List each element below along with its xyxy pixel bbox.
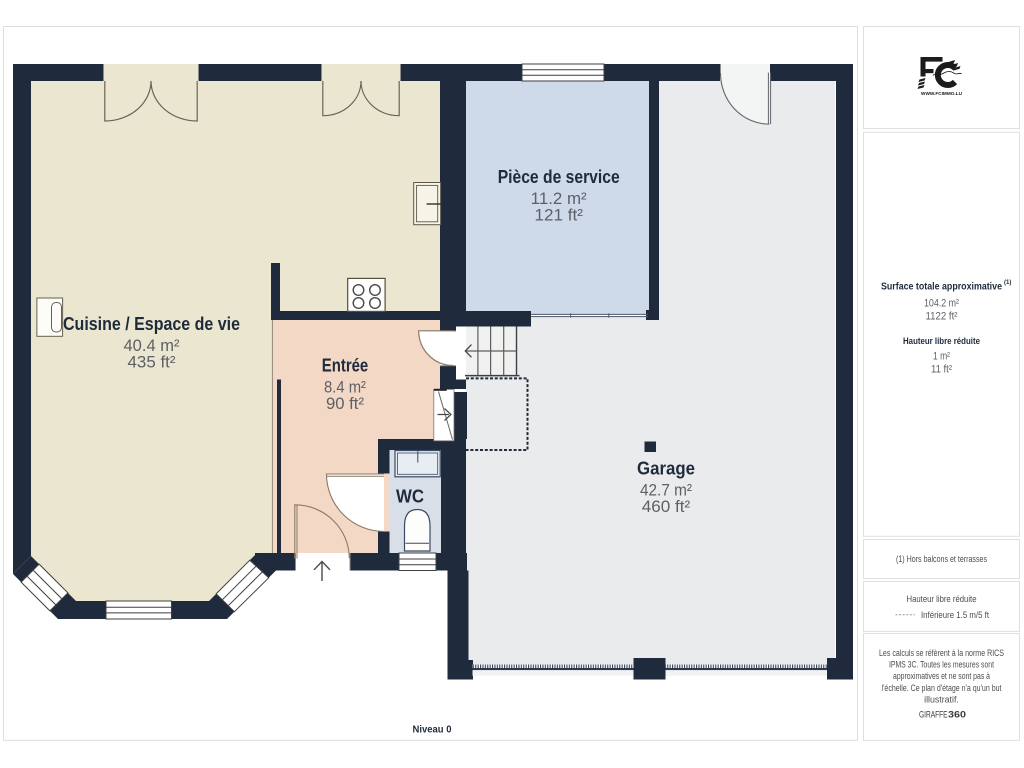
svg-text:360: 360 xyxy=(948,710,966,721)
svg-text:Entrée: Entrée xyxy=(322,355,369,375)
svg-text:Inférieure 1.5 m/5 ft: Inférieure 1.5 m/5 ft xyxy=(921,610,989,620)
svg-text:104.2 m²: 104.2 m² xyxy=(924,298,959,310)
svg-text:40.4 m²: 40.4 m² xyxy=(124,337,181,355)
svg-text:11.2 m²: 11.2 m² xyxy=(531,190,588,208)
svg-text:435 ft²: 435 ft² xyxy=(128,354,177,372)
svg-text:90 ft²: 90 ft² xyxy=(326,395,365,413)
svg-text:Niveau 0: Niveau 0 xyxy=(413,725,452,736)
svg-text:l'échelle. Ce plan d'étage n'a: l'échelle. Ce plan d'étage n'a qu'un but xyxy=(882,683,1002,693)
svg-text:42.7 m²: 42.7 m² xyxy=(640,482,692,500)
svg-text:8.4 m²: 8.4 m² xyxy=(324,378,366,396)
svg-text:1 m²: 1 m² xyxy=(933,351,950,363)
svg-text:Garage: Garage xyxy=(637,459,695,479)
svg-text:Les calculs se réfèrent à la n: Les calculs se réfèrent à la norme RICS xyxy=(879,648,1004,658)
svg-text:IPMS 3C. Toutes les mesures so: IPMS 3C. Toutes les mesures sont xyxy=(889,660,994,670)
svg-text:WWW.FCIMMO.LU: WWW.FCIMMO.LU xyxy=(921,91,963,97)
svg-text:Surface totale approximative: Surface totale approximative xyxy=(881,281,1002,293)
svg-text:121 ft²: 121 ft² xyxy=(535,207,584,225)
svg-text:illustratif.: illustratif. xyxy=(924,694,959,704)
svg-text:(1) Hors balcons et terrasses: (1) Hors balcons et terrasses xyxy=(896,554,987,564)
svg-text:WC: WC xyxy=(396,487,424,507)
svg-text:(1): (1) xyxy=(1004,280,1011,286)
svg-text:Cuisine / Espace de vie: Cuisine / Espace de vie xyxy=(63,314,240,334)
svg-text:Hauteur libre réduite: Hauteur libre réduite xyxy=(903,336,980,347)
svg-text:460 ft²: 460 ft² xyxy=(642,498,691,516)
svg-text:approximatives et ne sont pas: approximatives et ne sont pas à xyxy=(893,671,990,681)
svg-text:1122 ft²: 1122 ft² xyxy=(926,311,958,323)
svg-text:11 ft²: 11 ft² xyxy=(931,364,952,376)
svg-text:Hauteur libre réduite: Hauteur libre réduite xyxy=(907,594,977,604)
svg-text:GIRAFFE: GIRAFFE xyxy=(919,710,948,721)
svg-text:Pièce de service: Pièce de service xyxy=(498,167,620,187)
